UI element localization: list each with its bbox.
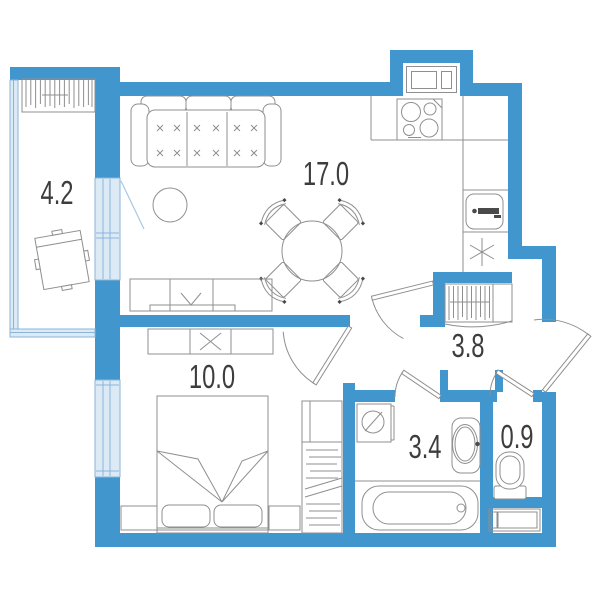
room-label-living-kitchen: 17.0 <box>303 155 349 193</box>
balcony-door-swing-line <box>121 181 144 229</box>
dining-set <box>256 195 368 307</box>
balcony-storage-rack <box>22 79 95 112</box>
floor-plan-svg <box>0 0 600 600</box>
fridge-spot-asterisk <box>470 238 494 266</box>
room-label-bedroom: 10.0 <box>189 358 235 396</box>
room-label-bathroom: 3.4 <box>408 428 441 466</box>
nightstand-right <box>269 506 300 530</box>
living-hall-door <box>371 281 433 339</box>
entrance-door <box>534 319 591 392</box>
nightstand-left <box>121 506 157 530</box>
dining-chair <box>256 258 305 307</box>
room-label-hallway: 3.8 <box>451 327 484 365</box>
double-bed <box>157 396 268 533</box>
pillow <box>214 505 262 527</box>
bathroom-door <box>395 370 441 398</box>
pillow <box>162 505 210 527</box>
cooktop <box>397 99 442 140</box>
dining-table <box>282 221 342 281</box>
vent-niche-window <box>403 63 460 96</box>
bathtub <box>355 481 480 530</box>
dining-chair <box>256 195 305 244</box>
room-label-wc: 0.9 <box>500 418 533 456</box>
tv-stand <box>130 279 272 311</box>
toilet <box>494 452 526 499</box>
bedroom-door <box>283 326 351 385</box>
bedroom-window <box>95 380 120 477</box>
balcony-chair <box>30 226 94 294</box>
dining-chair <box>319 258 368 307</box>
kitchen-sink <box>466 194 503 229</box>
room-label-balcony: 4.2 <box>40 174 73 212</box>
floor-plan: 4.2 17.0 10.0 3.8 3.4 0.9 <box>0 0 600 600</box>
living-room-balcony-door-window <box>95 178 144 280</box>
sofa <box>131 96 281 167</box>
closet-with-hangers <box>302 401 342 533</box>
washing-machine <box>357 404 394 442</box>
side-table <box>153 188 187 222</box>
dining-chair <box>319 195 368 244</box>
coat-rack <box>445 284 512 327</box>
low-wardrobe <box>148 329 273 354</box>
wash-basin <box>452 418 480 473</box>
wc-cabinet <box>489 509 540 531</box>
